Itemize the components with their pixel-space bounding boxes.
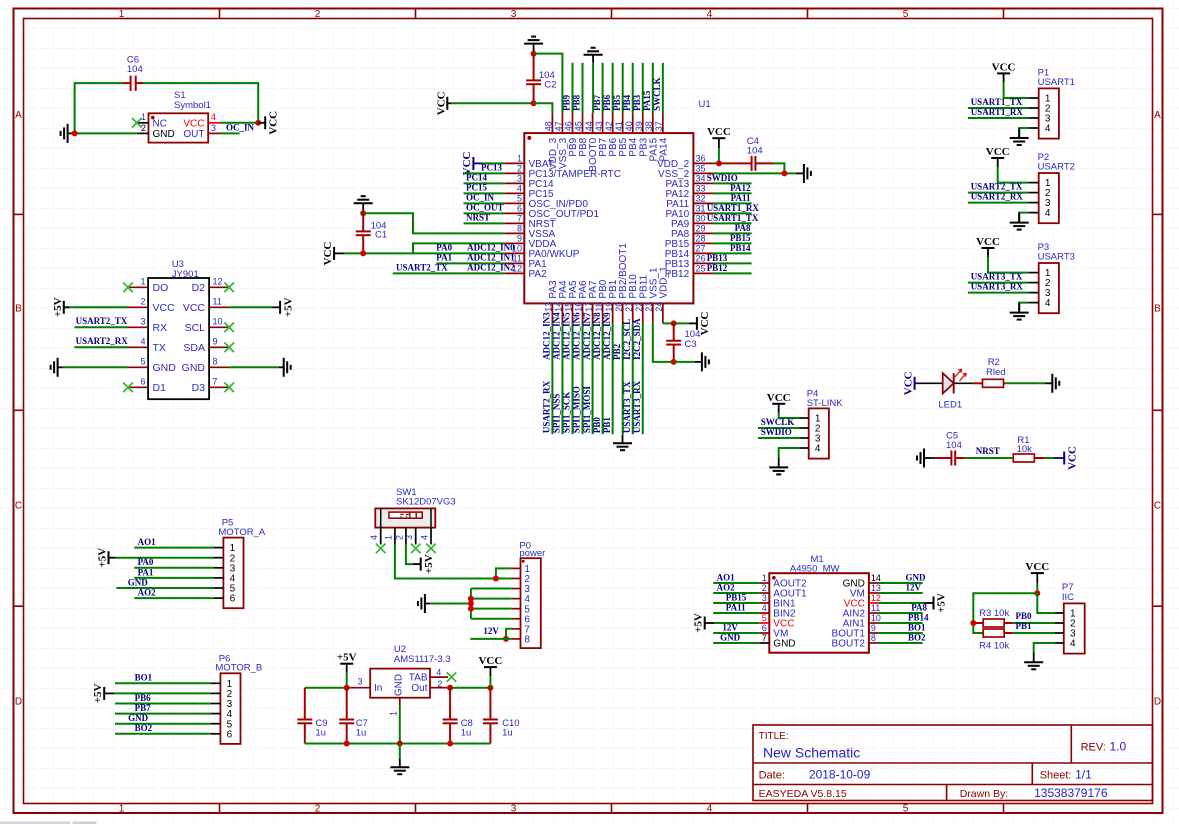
svg-text:+5V: +5V xyxy=(936,593,948,613)
svg-text:PB1: PB1 xyxy=(1016,621,1033,631)
svg-text:SDA: SDA xyxy=(183,342,205,354)
svg-text:6: 6 xyxy=(762,623,767,633)
svg-text:42: 42 xyxy=(604,121,614,131)
svg-text:2: 2 xyxy=(315,804,321,815)
svg-text:36: 36 xyxy=(696,154,706,164)
svg-text:SWCLK: SWCLK xyxy=(652,77,662,111)
svg-text:C3: C3 xyxy=(685,339,697,350)
svg-text:B: B xyxy=(15,304,22,315)
svg-text:VCC: VCC xyxy=(435,91,447,115)
svg-text:6: 6 xyxy=(517,204,522,214)
svg-text:24: 24 xyxy=(654,302,664,312)
svg-text:104: 104 xyxy=(747,146,763,157)
svg-text:+5V: +5V xyxy=(337,652,357,664)
svg-text:1: 1 xyxy=(517,154,522,164)
svg-text:45: 45 xyxy=(574,121,584,131)
svg-text:14: 14 xyxy=(871,573,881,583)
svg-text:TX: TX xyxy=(153,342,166,354)
svg-text:USART2: USART2 xyxy=(1038,162,1075,173)
svg-text:USART2_RX: USART2_RX xyxy=(542,380,552,433)
svg-text:12V: 12V xyxy=(483,626,499,636)
svg-text:AO1: AO1 xyxy=(717,572,736,582)
svg-text:Drawn By:: Drawn By: xyxy=(960,788,1008,800)
svg-text:PA11: PA11 xyxy=(726,602,746,612)
svg-text:GND: GND xyxy=(720,632,741,642)
svg-text:+5V: +5V xyxy=(52,297,64,317)
svg-text:22: 22 xyxy=(634,302,644,312)
svg-text:3: 3 xyxy=(517,174,522,184)
svg-text:USART1: USART1 xyxy=(1038,77,1075,88)
svg-text:1: 1 xyxy=(119,9,125,20)
svg-text:3: 3 xyxy=(357,677,362,687)
svg-text:ADC12_IN9: ADC12_IN9 xyxy=(602,312,612,360)
svg-text:21: 21 xyxy=(624,302,634,312)
svg-text:23: 23 xyxy=(644,302,654,312)
svg-text:PA14: PA14 xyxy=(658,137,669,161)
svg-text:VCC: VCC xyxy=(267,111,279,135)
svg-text:12: 12 xyxy=(213,276,223,286)
svg-text:PB8: PB8 xyxy=(572,94,582,111)
svg-text:REV:: REV: xyxy=(1081,742,1106,754)
svg-text:D2: D2 xyxy=(192,282,206,294)
svg-text:C: C xyxy=(1154,501,1161,512)
svg-text:4: 4 xyxy=(707,804,713,815)
svg-text:37: 37 xyxy=(654,121,664,131)
svg-text:PB12: PB12 xyxy=(707,263,728,273)
svg-text:SPI1_SCK: SPI1_SCK xyxy=(562,392,572,434)
svg-text:Sheet:: Sheet: xyxy=(1040,770,1072,782)
svg-text:33: 33 xyxy=(696,184,706,194)
svg-text:PC14: PC14 xyxy=(466,173,487,183)
svg-text:8: 8 xyxy=(517,224,522,234)
svg-text:VCC: VCC xyxy=(767,392,791,404)
svg-text:USART2_RX: USART2_RX xyxy=(76,336,129,346)
svg-text:12: 12 xyxy=(871,593,881,603)
svg-text:17: 17 xyxy=(584,302,594,312)
svg-text:PC13: PC13 xyxy=(481,163,502,173)
svg-text:11: 11 xyxy=(213,296,222,306)
svg-text:ADC12_IN6: ADC12_IN6 xyxy=(572,312,582,360)
svg-text:BO2: BO2 xyxy=(135,723,153,733)
svg-text:44: 44 xyxy=(584,121,594,131)
svg-text:TAB: TAB xyxy=(409,673,428,684)
svg-text:ADC12_IN7: ADC12_IN7 xyxy=(582,312,592,360)
svg-text:+5V: +5V xyxy=(282,297,294,317)
svg-text:+5V: +5V xyxy=(92,683,104,703)
svg-text:PB4: PB4 xyxy=(622,94,632,111)
svg-text:GND: GND xyxy=(773,639,795,650)
svg-text:47: 47 xyxy=(554,121,564,131)
svg-text:38: 38 xyxy=(644,121,654,131)
svg-text:2018-10-09: 2018-10-09 xyxy=(809,768,871,782)
svg-text:40: 40 xyxy=(624,121,634,131)
svg-text:AO2: AO2 xyxy=(717,582,736,592)
svg-text:R3 10k: R3 10k xyxy=(979,608,1009,619)
svg-text:BO1: BO1 xyxy=(908,622,926,632)
svg-text:1: 1 xyxy=(140,276,145,286)
svg-text:GND: GND xyxy=(153,129,175,140)
svg-text:+5V: +5V xyxy=(423,554,435,574)
svg-text:20: 20 xyxy=(614,302,624,312)
svg-text:9: 9 xyxy=(517,234,522,244)
svg-text:PB0: PB0 xyxy=(592,417,602,434)
svg-text:4: 4 xyxy=(211,112,216,122)
svg-text:NC: NC xyxy=(153,118,167,129)
svg-text:D3: D3 xyxy=(192,382,206,394)
svg-text:I2C2_SCL: I2C2_SCL xyxy=(622,319,632,360)
svg-text:GND: GND xyxy=(906,572,927,582)
svg-text:VCC: VCC xyxy=(478,655,502,667)
svg-text:ADC12_IN2: ADC12_IN2 xyxy=(467,263,515,273)
svg-text:PB15: PB15 xyxy=(726,592,747,602)
svg-text:USART3_TX: USART3_TX xyxy=(971,271,1023,281)
svg-text:JY901: JY901 xyxy=(172,269,199,280)
svg-text:C1: C1 xyxy=(375,230,387,241)
svg-text:PB3: PB3 xyxy=(632,94,642,111)
svg-text:4: 4 xyxy=(815,444,821,455)
svg-text:VDD_1: VDD_1 xyxy=(658,266,669,299)
svg-text:U1: U1 xyxy=(699,99,711,110)
svg-text:3: 3 xyxy=(511,804,517,815)
svg-text:VCC: VCC xyxy=(322,241,334,265)
svg-text:PB6: PB6 xyxy=(602,94,612,111)
svg-text:5: 5 xyxy=(903,804,909,815)
svg-text:13: 13 xyxy=(871,583,881,593)
svg-text:NRST: NRST xyxy=(466,213,490,223)
svg-text:PA1: PA1 xyxy=(436,253,452,263)
svg-text:TITLE:: TITLE: xyxy=(759,731,789,742)
svg-text:1: 1 xyxy=(383,535,393,540)
svg-text:31: 31 xyxy=(696,204,706,214)
svg-text:PA0: PA0 xyxy=(138,557,154,567)
svg-text:PA1: PA1 xyxy=(138,567,154,577)
svg-text:ADC12_IN3: ADC12_IN3 xyxy=(542,312,552,360)
svg-text:GND: GND xyxy=(128,713,149,723)
svg-text:104: 104 xyxy=(127,64,143,75)
svg-text:2: 2 xyxy=(141,123,146,133)
svg-text:10: 10 xyxy=(213,316,223,326)
svg-text:USART2_TX: USART2_TX xyxy=(971,181,1023,191)
svg-text:GND: GND xyxy=(182,362,206,374)
svg-text:41: 41 xyxy=(614,121,624,131)
svg-text:9: 9 xyxy=(871,623,876,633)
svg-text:OC_IN: OC_IN xyxy=(466,193,495,203)
svg-text:USART3_TX: USART3_TX xyxy=(622,381,632,433)
svg-text:VCC: VCC xyxy=(183,302,206,314)
svg-text:13538379176: 13538379176 xyxy=(1034,786,1108,800)
svg-text:New Schematic: New Schematic xyxy=(763,745,860,761)
svg-text:9: 9 xyxy=(213,336,218,346)
svg-text:AO1: AO1 xyxy=(138,537,157,547)
svg-text:PA12: PA12 xyxy=(730,183,751,193)
svg-text:34: 34 xyxy=(696,174,706,184)
svg-text:48: 48 xyxy=(544,121,554,131)
svg-text:3: 3 xyxy=(404,535,414,540)
svg-text:4: 4 xyxy=(517,184,522,194)
svg-text:5: 5 xyxy=(762,613,767,623)
svg-text:SWDIO: SWDIO xyxy=(761,427,792,437)
svg-text:PB13: PB13 xyxy=(707,253,728,263)
svg-text:PA15: PA15 xyxy=(642,90,652,111)
svg-text:5: 5 xyxy=(517,194,522,204)
svg-text:PB6: PB6 xyxy=(135,693,152,703)
svg-text:PA0: PA0 xyxy=(436,243,452,253)
svg-text:PA8: PA8 xyxy=(735,223,751,233)
svg-text:7: 7 xyxy=(213,376,218,386)
svg-text:16: 16 xyxy=(574,302,584,312)
svg-text:PA8: PA8 xyxy=(911,602,927,612)
svg-text:NRST: NRST xyxy=(976,446,1000,456)
svg-text:3: 3 xyxy=(211,123,216,133)
svg-text:MOTOR_A: MOTOR_A xyxy=(218,527,265,538)
svg-text:PB9: PB9 xyxy=(562,94,572,111)
svg-text:4: 4 xyxy=(420,535,430,540)
svg-text:USART3: USART3 xyxy=(1038,252,1075,263)
svg-text:USART1_TX: USART1_TX xyxy=(971,97,1023,107)
svg-text:LED1: LED1 xyxy=(938,400,962,411)
svg-text:1: 1 xyxy=(388,711,398,716)
svg-text:13: 13 xyxy=(544,302,554,312)
svg-text:3: 3 xyxy=(140,316,145,326)
svg-text:VCC: VCC xyxy=(699,311,711,335)
svg-text:18: 18 xyxy=(594,302,604,312)
svg-text:26: 26 xyxy=(696,254,706,264)
svg-text:19: 19 xyxy=(604,302,614,312)
svg-text:B: B xyxy=(1154,304,1161,315)
svg-text:2: 2 xyxy=(140,296,145,306)
svg-text:5: 5 xyxy=(903,9,909,20)
svg-text:46: 46 xyxy=(564,121,574,131)
svg-text:D: D xyxy=(15,697,22,708)
svg-text:USART1_TX: USART1_TX xyxy=(707,213,759,223)
svg-text:6: 6 xyxy=(227,729,233,740)
svg-text:GND: GND xyxy=(153,362,177,374)
svg-text:D1: D1 xyxy=(153,382,167,394)
svg-text:4: 4 xyxy=(762,603,767,613)
svg-text:R4 10k: R4 10k xyxy=(979,640,1009,651)
svg-text:1u: 1u xyxy=(502,728,513,739)
svg-text:4: 4 xyxy=(1045,208,1051,219)
svg-text:PB2: PB2 xyxy=(612,343,622,360)
svg-text:7: 7 xyxy=(517,214,522,224)
svg-text:GND: GND xyxy=(128,577,149,587)
svg-text:EASYEDA V5.8.15: EASYEDA V5.8.15 xyxy=(759,788,847,800)
svg-text:4: 4 xyxy=(1045,124,1051,135)
svg-text:D: D xyxy=(1154,697,1161,708)
svg-text:Out: Out xyxy=(411,683,427,694)
svg-text:11: 11 xyxy=(871,603,880,613)
svg-text:27: 27 xyxy=(696,244,706,254)
svg-text:MOTOR_B: MOTOR_B xyxy=(215,663,262,674)
svg-text:VCC: VCC xyxy=(986,146,1010,158)
svg-text:IIC: IIC xyxy=(1062,592,1074,603)
svg-text:power: power xyxy=(519,548,545,559)
svg-text:7: 7 xyxy=(762,633,767,643)
svg-text:VCC: VCC xyxy=(707,126,731,138)
svg-text:ADC12_IN0: ADC12_IN0 xyxy=(467,243,515,253)
svg-text:Symbol1: Symbol1 xyxy=(174,100,211,111)
svg-text:OUT: OUT xyxy=(183,129,204,140)
svg-text:USART2_RX: USART2_RX xyxy=(971,191,1024,201)
svg-text:12V: 12V xyxy=(906,582,922,592)
svg-text:10: 10 xyxy=(871,613,881,623)
svg-text:1u: 1u xyxy=(315,728,326,739)
svg-text:A: A xyxy=(15,110,22,121)
svg-text:3: 3 xyxy=(762,593,767,603)
svg-text:USART2_TX: USART2_TX xyxy=(396,263,448,273)
svg-text:25: 25 xyxy=(696,264,706,274)
svg-text:AO2: AO2 xyxy=(138,588,157,598)
svg-text:2: 2 xyxy=(517,164,522,174)
svg-text:BOUT2: BOUT2 xyxy=(832,639,866,650)
svg-text:USART3_RX: USART3_RX xyxy=(632,380,642,433)
svg-text:VCC: VCC xyxy=(1067,446,1079,470)
svg-text:5: 5 xyxy=(140,356,145,366)
svg-text:VCC: VCC xyxy=(992,61,1016,73)
svg-text:6: 6 xyxy=(230,594,236,605)
svg-text:C2: C2 xyxy=(544,80,556,91)
svg-text:VCC: VCC xyxy=(153,302,176,314)
svg-text:PB0: PB0 xyxy=(1016,611,1033,621)
svg-text:2: 2 xyxy=(315,9,321,20)
svg-text:A4950_MW: A4950_MW xyxy=(790,564,840,575)
svg-text:1u: 1u xyxy=(356,728,367,739)
svg-text:PB7: PB7 xyxy=(135,703,152,713)
svg-text:104: 104 xyxy=(946,440,962,451)
svg-text:4: 4 xyxy=(1045,298,1051,309)
svg-text:VCC: VCC xyxy=(902,371,914,395)
svg-text:+5V: +5V xyxy=(97,548,109,568)
svg-text:14: 14 xyxy=(554,302,564,312)
svg-text:8: 8 xyxy=(524,634,530,645)
svg-text:1: 1 xyxy=(119,804,125,815)
svg-text:RX: RX xyxy=(153,322,168,334)
svg-text:USART1_RX: USART1_RX xyxy=(971,107,1024,117)
svg-text:ST-LINK: ST-LINK xyxy=(807,398,844,409)
svg-text:VCC: VCC xyxy=(976,236,1000,248)
svg-text:I2C2_SDA: I2C2_SDA xyxy=(632,318,642,360)
svg-text:43: 43 xyxy=(594,121,604,131)
svg-text:ADC12_IN1: ADC12_IN1 xyxy=(467,253,515,263)
svg-text:GND: GND xyxy=(393,674,404,696)
svg-text:10k: 10k xyxy=(1017,444,1033,455)
svg-text:Rled: Rled xyxy=(986,367,1006,378)
svg-text:6: 6 xyxy=(140,376,145,386)
svg-text:12V: 12V xyxy=(722,622,738,632)
svg-text:OC_OUT: OC_OUT xyxy=(466,203,504,213)
svg-text:1: 1 xyxy=(762,573,767,583)
svg-text:USART3_RX: USART3_RX xyxy=(971,281,1024,291)
svg-text:SPI1_MISO: SPI1_MISO xyxy=(572,386,582,433)
svg-text:4: 4 xyxy=(436,667,441,677)
svg-text:29: 29 xyxy=(696,224,706,234)
svg-text:USART2_TX: USART2_TX xyxy=(76,316,128,326)
svg-text:ADC12_IN5: ADC12_IN5 xyxy=(562,312,572,360)
svg-text:BO2: BO2 xyxy=(908,632,926,642)
svg-text:In: In xyxy=(374,683,382,694)
svg-text:SWCLK: SWCLK xyxy=(761,417,795,427)
svg-text:4: 4 xyxy=(1070,639,1076,650)
svg-text:+5V: +5V xyxy=(693,613,705,633)
svg-text:DO: DO xyxy=(153,282,169,294)
svg-text:2: 2 xyxy=(394,535,404,540)
svg-text:1/1: 1/1 xyxy=(1075,768,1092,782)
svg-text:3: 3 xyxy=(511,9,517,20)
svg-text:4: 4 xyxy=(369,535,379,540)
svg-text:OC_IN: OC_IN xyxy=(226,123,255,133)
svg-text:1.0: 1.0 xyxy=(1110,740,1127,754)
svg-text:VCC: VCC xyxy=(183,118,204,129)
svg-text:SPI1_MOSI: SPI1_MOSI xyxy=(582,386,592,434)
svg-text:SWDIO: SWDIO xyxy=(707,173,738,183)
svg-text:PA2: PA2 xyxy=(529,269,548,280)
svg-text:SK12D07VG3: SK12D07VG3 xyxy=(396,497,456,508)
svg-text:35: 35 xyxy=(696,164,706,174)
svg-text:8: 8 xyxy=(213,356,218,366)
svg-text:PB14: PB14 xyxy=(730,243,751,253)
svg-text:PB14: PB14 xyxy=(908,612,929,622)
svg-text:PA11: PA11 xyxy=(731,193,751,203)
svg-text:Date:: Date: xyxy=(759,770,785,782)
svg-text:1u: 1u xyxy=(461,728,472,739)
svg-text:2: 2 xyxy=(762,583,767,593)
svg-text:USART1_RX: USART1_RX xyxy=(707,203,760,213)
svg-text:PC15: PC15 xyxy=(466,183,487,193)
svg-text:39: 39 xyxy=(634,121,644,131)
svg-text:32: 32 xyxy=(696,194,706,204)
svg-text:4: 4 xyxy=(707,9,713,20)
svg-text:AMS1117-3.3: AMS1117-3.3 xyxy=(394,654,451,665)
svg-text:A: A xyxy=(1154,110,1161,121)
svg-text:ADC12_IN8: ADC12_IN8 xyxy=(592,312,602,360)
svg-text:SPI1_NSS: SPI1_NSS xyxy=(552,394,562,434)
svg-text:30: 30 xyxy=(696,214,706,224)
svg-text:ADC12_IN4: ADC12_IN4 xyxy=(552,312,562,360)
svg-text:4: 4 xyxy=(140,336,145,346)
svg-text:8: 8 xyxy=(871,633,876,643)
svg-text:VCC: VCC xyxy=(1025,561,1049,573)
svg-text:SCL: SCL xyxy=(185,322,206,334)
svg-text:15: 15 xyxy=(564,302,574,312)
svg-text:1: 1 xyxy=(141,112,146,122)
svg-text:BO1: BO1 xyxy=(135,673,153,683)
svg-text:PB1: PB1 xyxy=(602,417,612,434)
svg-text:C: C xyxy=(15,501,22,512)
svg-text:PB5: PB5 xyxy=(612,94,622,111)
svg-text:28: 28 xyxy=(696,234,706,244)
svg-text:PB15: PB15 xyxy=(730,233,751,243)
